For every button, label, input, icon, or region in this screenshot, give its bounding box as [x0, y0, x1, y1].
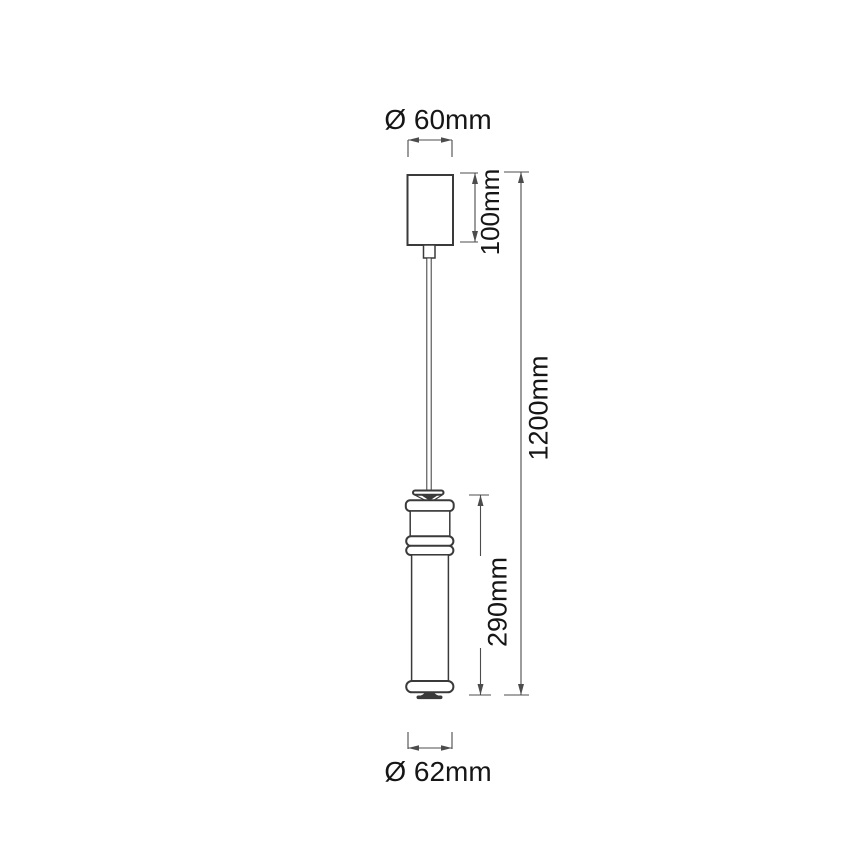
arrow-shade-down: [478, 684, 484, 695]
shade-bottom-cap: [406, 681, 453, 692]
shade-upper-cylinder: [410, 511, 450, 536]
shade-main-body: [412, 555, 449, 682]
arrow-top-diameter-left: [408, 137, 419, 143]
cable-connector: [424, 245, 436, 258]
arrow-shade-up: [478, 495, 484, 506]
shade-top-cap: [406, 500, 454, 511]
shade-bottom-finial-base: [417, 696, 443, 700]
arrow-bottom-diameter-left: [408, 745, 419, 751]
shade-ring-band-2: [406, 546, 453, 555]
arrow-top-diameter-right: [441, 137, 452, 143]
drawing-canvas: Ø 60mm 100mm 1200mm 290mm Ø 62mm: [0, 0, 868, 868]
label-shade-height: 290mm: [482, 557, 512, 647]
arrow-bottom-diameter-right: [441, 745, 452, 751]
label-canopy-height: 100mm: [475, 169, 505, 256]
pendant-lamp-dimension-drawing: Ø 60mm 100mm 1200mm 290mm Ø 62mm: [0, 0, 868, 868]
label-overall-length: 1200mm: [523, 355, 553, 460]
shade-top-flare-disc: [413, 491, 444, 495]
ceiling-canopy: [408, 175, 454, 245]
shade-ring-band-1: [406, 536, 453, 546]
arrow-overall-up: [518, 172, 524, 183]
label-top-diameter: Ø 60mm: [384, 104, 491, 135]
suspension-cable: [427, 258, 431, 491]
lamp-outline-group: [406, 175, 454, 692]
label-bottom-diameter: Ø 62mm: [384, 756, 491, 787]
arrow-overall-down: [518, 684, 524, 695]
